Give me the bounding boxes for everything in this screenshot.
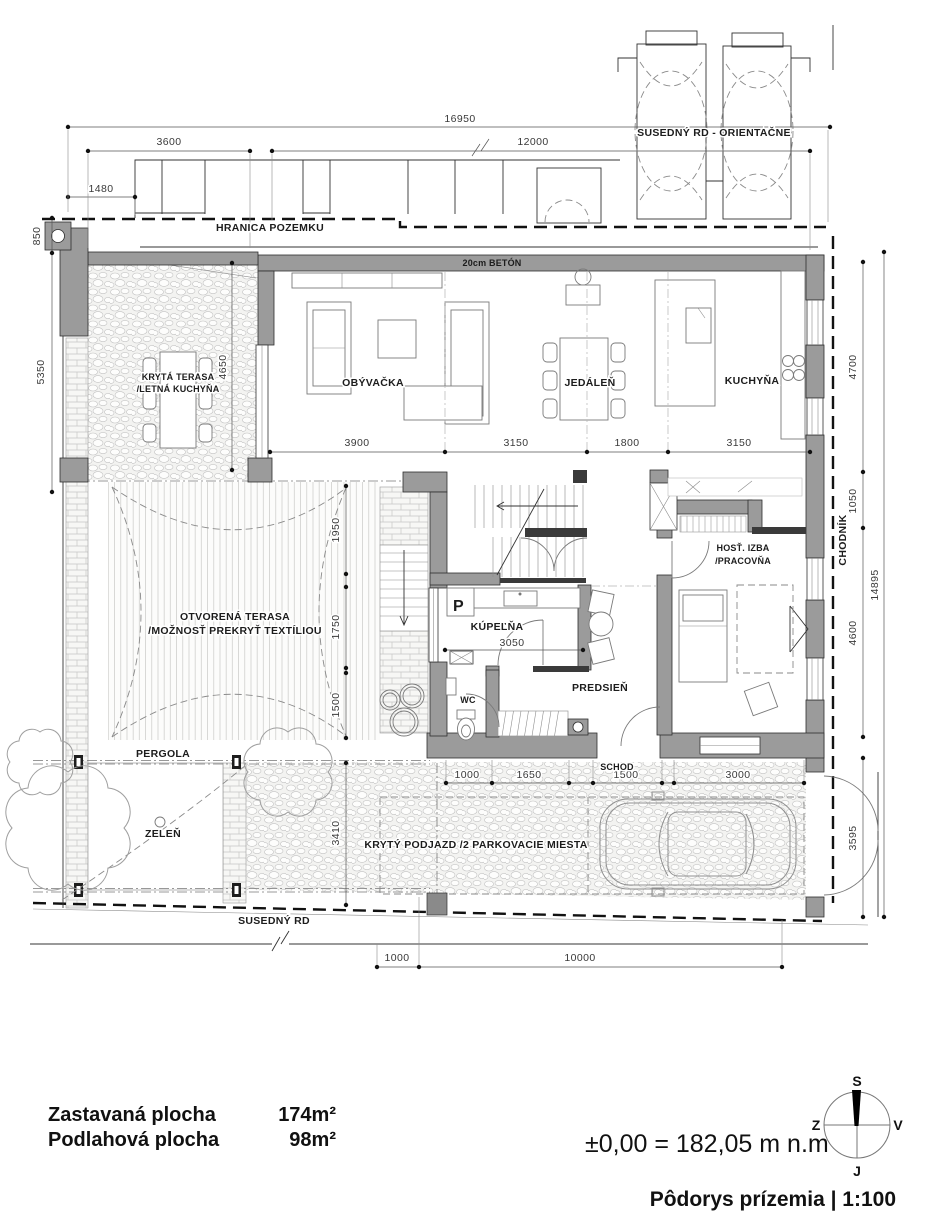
window-east-4 (807, 658, 823, 700)
drawing-title: Pôdorys prízemia | 1:100 (650, 1188, 896, 1211)
bathroom-fixtures (447, 588, 580, 616)
dim-pergola-height: 3410 (330, 821, 342, 846)
dim-bottom-offset: 1000 (385, 952, 410, 964)
room-wc-label: WC (460, 695, 476, 705)
floorplan-drawing: 16950 3600 12000 1480 850 5350 4650 3900… (0, 0, 931, 1218)
dim-corner: 850 (31, 227, 43, 246)
dim-house-width: 12000 (517, 136, 548, 148)
dim-dining: 3150 (504, 437, 529, 449)
dim-terrace-height: 5350 (35, 360, 47, 385)
neighbor-buildings (135, 25, 833, 223)
wall-note-label: 20cm BETÓN (462, 257, 521, 268)
room-bathroom-label: KÚPEĽŇA (471, 620, 524, 633)
room-living-label: OBÝVAČKA (342, 376, 404, 389)
covered-terrace-furniture (143, 352, 212, 448)
compass-south: J (853, 1163, 861, 1179)
storage-strip (668, 478, 802, 496)
living-room-furniture (292, 273, 489, 424)
compass-needle-icon (852, 1090, 861, 1126)
dim-bottom-width: 10000 (564, 952, 595, 964)
floorplan-page: 16950 3600 12000 1480 850 5350 4650 3900… (0, 0, 931, 1218)
compass: S Z V J (812, 1073, 904, 1179)
dim-entry1: 1000 (455, 769, 480, 781)
built-area-label: Zastavaná plocha (48, 1104, 217, 1126)
room-open-terrace-label-1: OTVORENÁ TERASA (180, 610, 290, 623)
guest-room-furniture (679, 585, 793, 716)
floor-area-value: 98m² (289, 1129, 336, 1151)
room-covered-terrace-label-2: /LETNÁ KUCHYŇA (137, 383, 220, 394)
dim-interior-h (268, 450, 812, 454)
dim-porch (66, 195, 137, 199)
dim-kitchen: 3150 (727, 437, 752, 449)
dim-bottom (375, 965, 784, 969)
driveway-label: KRYTÝ PODJAZD /2 PARKOVACIE MIESTA (364, 838, 587, 851)
dim-terrace-seg2: 1750 (330, 615, 342, 640)
dim-hall-side: 1050 (847, 489, 859, 514)
washer-mark: P (453, 598, 464, 615)
dim-terrace-seg1: 1950 (330, 518, 342, 543)
dim-bath: 3050 (500, 637, 525, 649)
room-open-terrace-label-2: /MOŽNOSŤ PREKRYŤ TEXTÍLIOU (148, 624, 322, 637)
dim-kitchen-side: 4700 (847, 355, 859, 380)
room-kitchen-label: KUCHYŇA (725, 374, 780, 387)
dim-porch: 1480 (89, 183, 114, 195)
exterior-stair-label: SCHOD (600, 762, 634, 772)
boundary-label: HRANICA POZEMKU (216, 222, 324, 234)
dim-right-outer (882, 250, 886, 919)
dim-right-inner (861, 260, 865, 919)
pergola-label: PERGOLA (136, 748, 190, 760)
dim-guest-side: 4600 (847, 621, 859, 646)
room-guest-label-2: /PRACOVŇA (715, 555, 771, 566)
compass-north: S (852, 1073, 861, 1089)
shelf-x-marker (450, 651, 473, 664)
room-guest-label-1: HOSŤ. IZBA (717, 542, 770, 553)
dim-terrace-inner: 4650 (217, 355, 229, 380)
dim-terrace-seg3: 1500 (330, 693, 342, 718)
floor-area-label: Podlahová plocha (48, 1129, 220, 1151)
dim-left-wing: 3600 (157, 136, 182, 148)
dim-gate: 3595 (847, 826, 859, 851)
window-east-2 (807, 398, 823, 435)
window-west-living (256, 345, 268, 458)
window-south-guest (700, 737, 760, 754)
legend: Zastavaná plocha 174m² Podlahová plocha … (48, 1104, 896, 1211)
window-east-3 (807, 558, 823, 600)
dim-left (50, 216, 54, 494)
greenery-label: ZELEŇ (145, 827, 181, 840)
built-area-value: 174m² (278, 1104, 336, 1126)
dim-total-height: 14895 (869, 569, 881, 600)
dim-row2 (86, 139, 812, 156)
wc-fixtures (446, 678, 475, 740)
neighbor-top-label: SUSEDNÝ RD - ORIENTAČNE (637, 126, 791, 139)
dim-entry2: 1650 (517, 769, 542, 781)
dim-living: 3900 (345, 437, 370, 449)
room-dining-label: JEDÁLEŇ (564, 376, 615, 389)
dining-furniture (543, 269, 625, 420)
dim-island: 1800 (615, 437, 640, 449)
window-bath-west (429, 588, 438, 662)
room-covered-terrace-label-1: KRYTÁ TERASA (142, 372, 215, 382)
window-east-1 (807, 300, 823, 345)
dim-total-width: 16950 (444, 113, 475, 125)
exterior-side-stairs (380, 545, 428, 631)
dim-entry4: 3000 (726, 769, 751, 781)
elevation-note: ±0,00 = 182,05 m n.m (585, 1130, 829, 1158)
room-hallway-label: PREDSIEŇ (572, 681, 628, 694)
sidewalk-label: CHODNÍK (836, 514, 849, 565)
kitchen-furniture (655, 271, 805, 439)
wardrobe-strip (680, 516, 746, 532)
compass-east: V (893, 1117, 903, 1133)
neighbor-bottom-label: SUSEDNÝ RD (238, 914, 310, 927)
hallway-furniture (588, 590, 615, 664)
entry-steps (498, 711, 568, 736)
